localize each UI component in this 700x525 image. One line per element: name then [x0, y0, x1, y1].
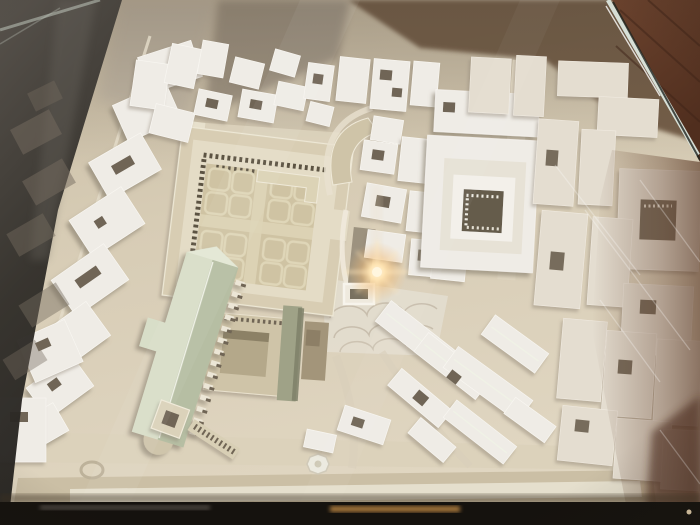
vignette: [0, 0, 700, 525]
museum-model-photo: [0, 0, 700, 525]
